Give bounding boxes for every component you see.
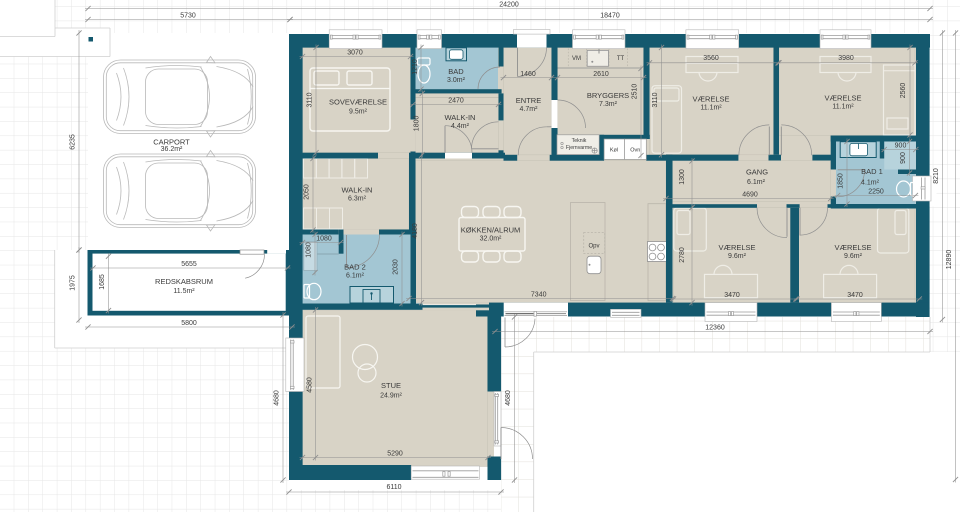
- svg-text:3470: 3470: [724, 292, 740, 299]
- svg-text:7340: 7340: [531, 292, 547, 299]
- svg-text:4.4m²: 4.4m²: [451, 123, 470, 130]
- svg-text:24.9m²: 24.9m²: [380, 393, 402, 400]
- svg-text:1080: 1080: [306, 242, 313, 258]
- svg-text:VM: VM: [572, 56, 581, 62]
- svg-text:2050: 2050: [304, 184, 311, 200]
- svg-text:3.0m²: 3.0m²: [447, 77, 466, 84]
- svg-text:2610: 2610: [593, 71, 609, 78]
- svg-text:2510: 2510: [632, 84, 639, 100]
- svg-text:1080: 1080: [316, 236, 332, 243]
- svg-text:4.7m²: 4.7m²: [520, 106, 539, 113]
- svg-text:WALK-IN: WALK-IN: [342, 186, 373, 195]
- svg-text:4580: 4580: [307, 377, 314, 393]
- svg-text:2780: 2780: [679, 247, 686, 263]
- svg-text:Teknik: Teknik: [572, 138, 587, 144]
- svg-text:1975: 1975: [70, 275, 77, 291]
- svg-text:VÆRELSE: VÆRELSE: [824, 94, 861, 103]
- svg-text:TT: TT: [617, 56, 625, 62]
- svg-text:4180: 4180: [412, 223, 419, 239]
- svg-text:900: 900: [895, 143, 907, 150]
- svg-text:2470: 2470: [448, 98, 464, 105]
- svg-text:9.5m²: 9.5m²: [349, 109, 368, 116]
- svg-text:2030: 2030: [393, 259, 400, 275]
- svg-text:KØKKEN/ALRUM: KØKKEN/ALRUM: [461, 225, 521, 234]
- svg-text:Opv: Opv: [588, 244, 599, 250]
- svg-text:5730: 5730: [180, 13, 196, 20]
- svg-text:5800: 5800: [181, 320, 197, 327]
- svg-text:5290: 5290: [387, 450, 403, 457]
- svg-text:VÆRELSE: VÆRELSE: [692, 95, 729, 104]
- svg-text:Ovn: Ovn: [630, 148, 640, 154]
- svg-text:4680: 4680: [274, 390, 281, 406]
- svg-text:4690: 4690: [742, 191, 758, 198]
- svg-text:WALK-IN: WALK-IN: [445, 113, 476, 122]
- svg-text:12360: 12360: [705, 325, 725, 332]
- svg-text:BAD 2: BAD 2: [344, 263, 366, 272]
- svg-text:6235: 6235: [70, 134, 77, 150]
- svg-text:6.1m²: 6.1m²: [346, 273, 365, 280]
- svg-text:VÆRELSE: VÆRELSE: [718, 243, 755, 252]
- svg-text:4680: 4680: [505, 390, 512, 406]
- svg-text:12890: 12890: [946, 250, 953, 270]
- svg-text:7.3m²: 7.3m²: [599, 101, 618, 108]
- svg-text:9.6m²: 9.6m²: [728, 253, 747, 260]
- svg-text:6.3m²: 6.3m²: [348, 196, 367, 203]
- svg-text:GANG: GANG: [746, 168, 768, 177]
- svg-text:32.0m²: 32.0m²: [480, 236, 502, 243]
- svg-text:ENTRE: ENTRE: [516, 96, 541, 105]
- svg-text:18470: 18470: [600, 13, 620, 20]
- svg-text:3110: 3110: [652, 92, 659, 107]
- svg-text:REDSKABSRUM: REDSKABSRUM: [155, 277, 213, 286]
- svg-text:BAD 1: BAD 1: [861, 167, 883, 176]
- svg-text:4.1m²: 4.1m²: [861, 179, 880, 186]
- svg-text:5655: 5655: [181, 261, 197, 268]
- svg-text:24200: 24200: [499, 2, 519, 9]
- svg-text:1300: 1300: [679, 169, 686, 185]
- svg-text:SOVEVÆRELSE: SOVEVÆRELSE: [329, 98, 387, 107]
- svg-text:3470: 3470: [847, 292, 863, 299]
- svg-text:3070: 3070: [347, 50, 363, 57]
- svg-text:1800: 1800: [413, 116, 420, 132]
- svg-text:BRYGGERS: BRYGGERS: [587, 91, 629, 100]
- svg-text:2250: 2250: [868, 188, 884, 195]
- svg-text:1460: 1460: [520, 71, 536, 78]
- svg-text:3110: 3110: [307, 92, 314, 107]
- svg-text:6.1m²: 6.1m²: [747, 179, 766, 186]
- svg-text:6110: 6110: [386, 484, 401, 491]
- svg-text:BAD: BAD: [448, 67, 464, 76]
- svg-text:STUE: STUE: [381, 381, 401, 390]
- svg-text:9.6m²: 9.6m²: [844, 253, 863, 260]
- svg-text:Fjernvarme: Fjernvarme: [566, 145, 592, 151]
- svg-text:Køl: Køl: [610, 148, 618, 154]
- svg-text:1685: 1685: [99, 274, 106, 290]
- svg-text:8210: 8210: [933, 168, 940, 184]
- svg-text:3560: 3560: [703, 55, 719, 62]
- svg-text:36.2m²: 36.2m²: [161, 146, 183, 153]
- svg-text:1850: 1850: [838, 173, 845, 189]
- svg-text:11.5m²: 11.5m²: [173, 288, 195, 295]
- svg-text:1210: 1210: [412, 59, 419, 75]
- svg-text:900: 900: [900, 152, 907, 164]
- svg-text:VÆRELSE: VÆRELSE: [834, 243, 871, 252]
- svg-text:3980: 3980: [838, 55, 854, 62]
- svg-text:11.1m²: 11.1m²: [832, 104, 854, 111]
- svg-text:11.1m²: 11.1m²: [700, 105, 722, 112]
- svg-text:2560: 2560: [900, 83, 907, 99]
